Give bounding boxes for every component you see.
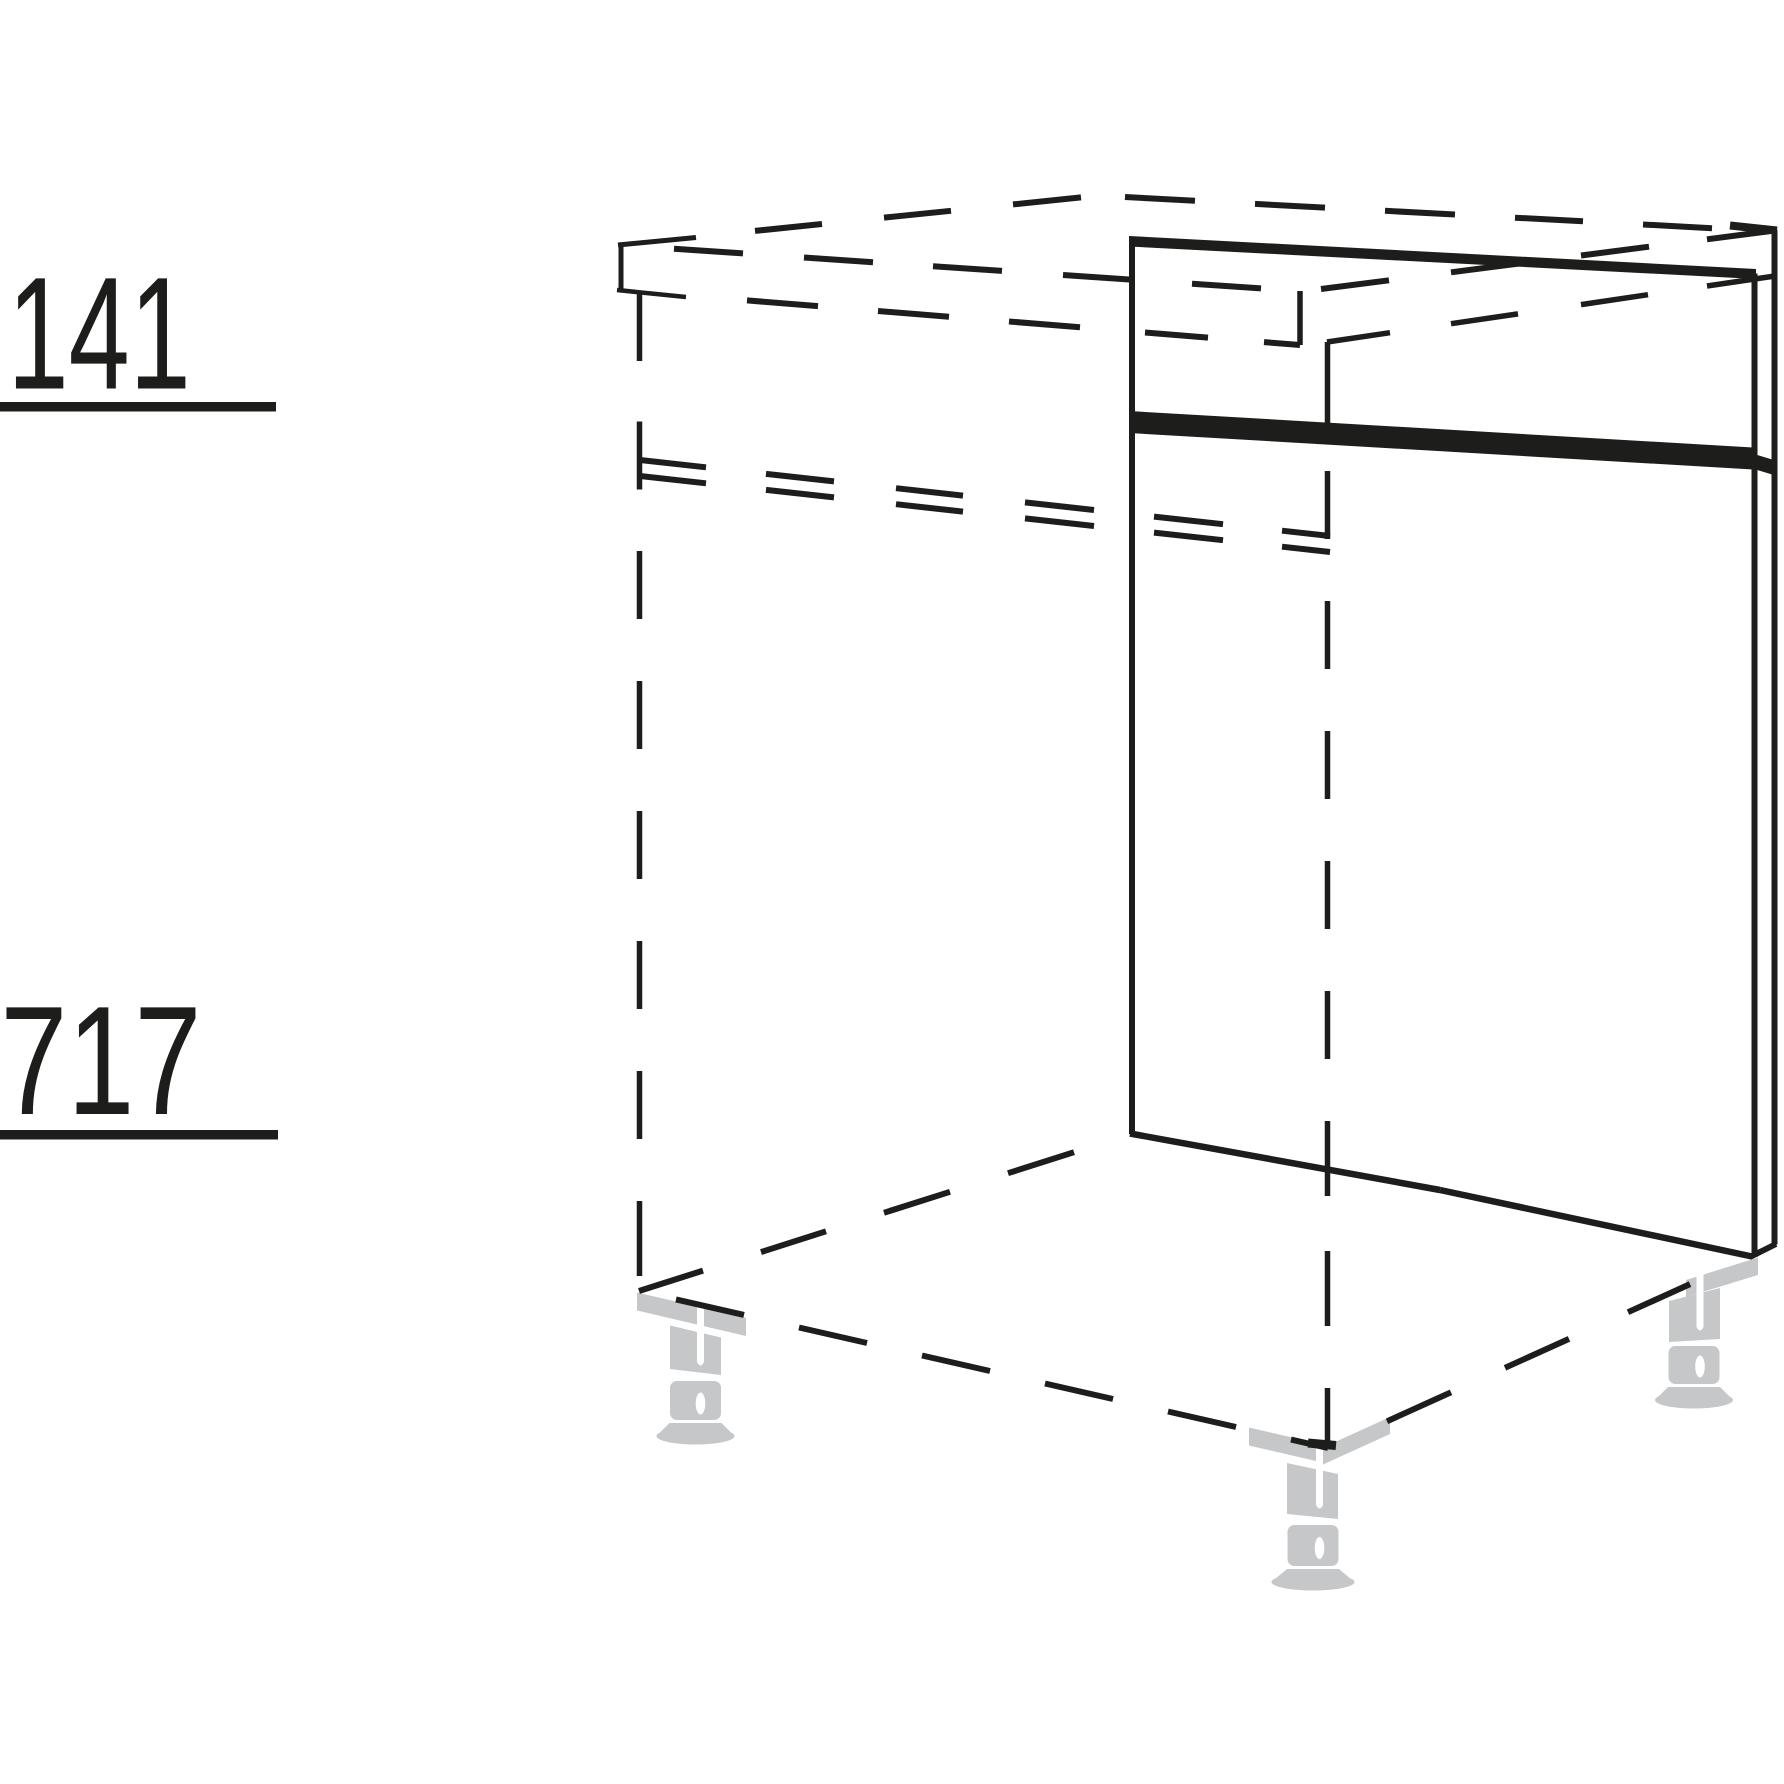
svg-text:717: 717 — [0, 974, 201, 1147]
svg-text:141: 141 — [8, 245, 191, 423]
